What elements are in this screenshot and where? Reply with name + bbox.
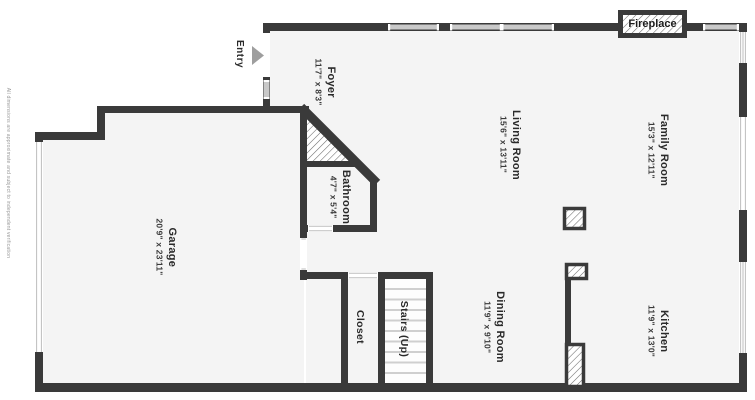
entry-sidelight-window [264,82,270,97]
room-name: Closet [353,310,367,344]
foyer-label: Foyer 11'7" x 8'3" [312,58,338,105]
room-name: Stairs (Up) [397,301,411,357]
room-name: Living Room [508,110,523,180]
room-dimensions: 20'9" x 23'11" [153,219,164,276]
garage-hall-door-opening [300,238,307,270]
room-name: Foyer [323,58,338,105]
window [503,25,552,30]
closet-left-wall [341,272,348,383]
bathroom-label: Bathroom 4'7" x 5'4" [327,170,353,224]
fireplace-label: Fireplace [618,10,687,38]
entry-arrow-icon [252,46,264,65]
entry-door-opening [263,33,270,77]
garage-top-wall [97,106,309,113]
dining-room-label: Dining Room 11'9" x 9'10" [481,291,507,363]
room-dimensions: 11'7" x 8'3" [312,58,323,105]
room-dimensions: 11'9" x 9'10" [481,291,492,363]
room-dimensions: 4'7" x 5'4" [327,170,338,224]
main-area-fill [270,30,740,112]
room-dimensions: 11'9" x 13'0" [645,305,656,357]
stairs-left-wall [378,272,385,383]
counter-end-upper [567,265,587,279]
stairs-right-wall [426,272,433,383]
kitchen-island [565,209,585,229]
window [452,25,500,30]
kitchen-label: Kitchen 11'9" x 13'0" [645,305,671,357]
window [390,25,437,30]
bottom-wall [35,383,747,392]
room-dimensions: 15'6" x 13'11" [497,110,508,180]
garage-step-horizontal-wall [35,132,103,140]
room-name: Dining Room [492,291,507,363]
disclaimer-text: All dimensions are approximate and subje… [5,88,11,258]
room-dimensions: 15'3" x 12'11" [645,114,656,186]
floor-plan-drawing [0,0,755,400]
stairs-label: Stairs (Up) [397,301,411,357]
room-name: Kitchen [656,305,671,357]
counter-end-lower [567,345,584,387]
room-name: Bathroom [338,170,353,224]
garage-label: Garage 20'9" x 23'11" [153,219,179,276]
family-room-label: Family Room 15'3" x 12'11" [645,114,671,186]
bathroom-inner-wall [300,161,358,167]
window [705,25,737,30]
floor-plan: Entry Foyer 11'7" x 8'3" Living Room 15'… [0,0,755,400]
room-name: Family Room [656,114,671,186]
living-room-label: Living Room 15'6" x 13'11" [497,110,523,180]
hall-closet-wall [300,272,348,279]
room-name: Garage [164,219,179,276]
garage-fill-right [100,112,304,384]
entry-label: Entry [232,40,246,68]
closet-label: Closet [353,310,367,344]
entry-label-text: Entry [232,40,246,68]
bathroom-right-wall [370,180,377,232]
garage-fill-left [43,139,103,384]
stairs-top-wall [378,272,433,279]
